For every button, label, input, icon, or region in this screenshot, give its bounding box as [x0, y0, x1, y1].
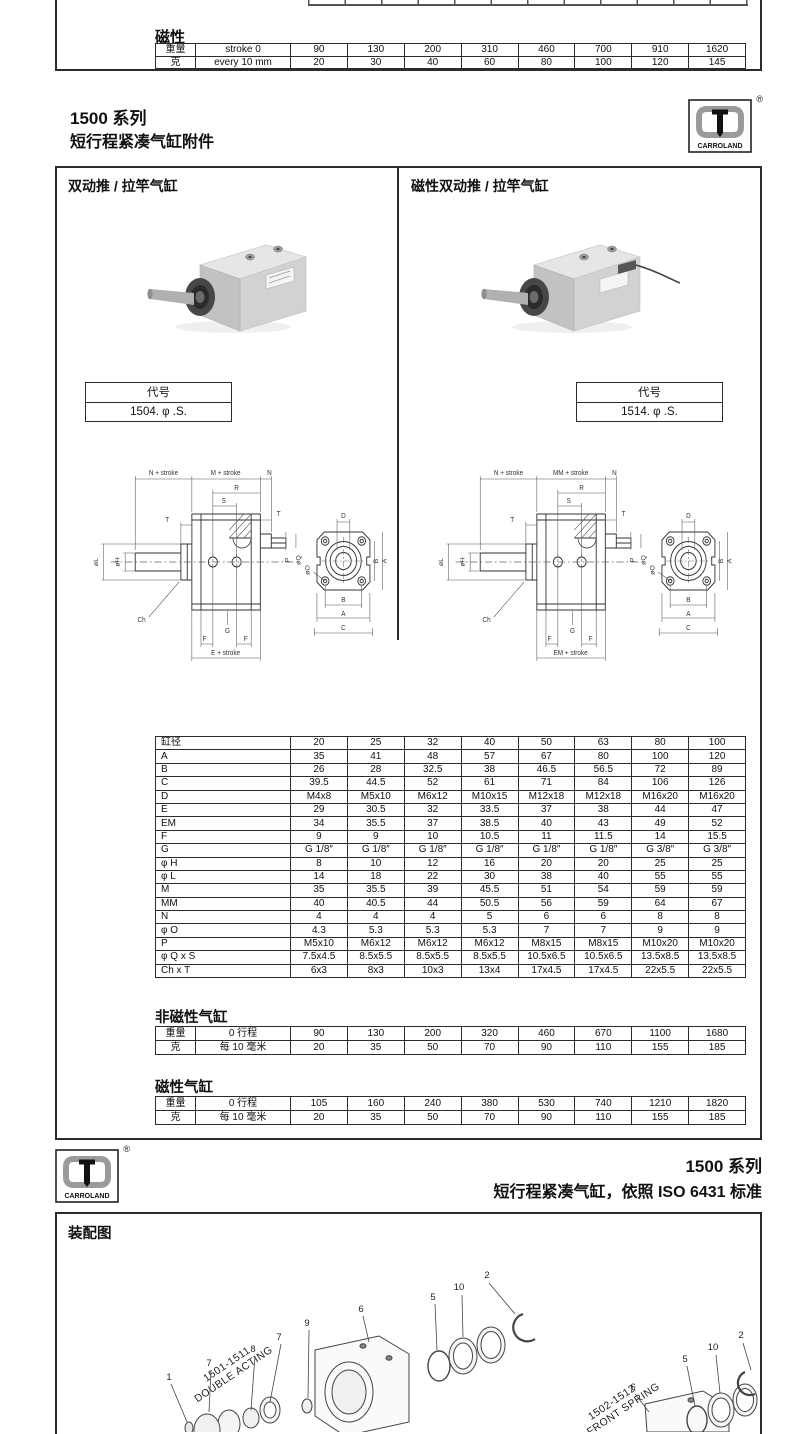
table-cell: 18 [347, 870, 404, 883]
table-cell: 20 [291, 56, 348, 69]
table-cell: 45.5 [461, 884, 518, 897]
table-cell: 80 [632, 737, 689, 750]
table-cell: 39 [404, 884, 461, 897]
table-cell: 重量 [156, 1027, 196, 1041]
table-cell: G 1/8″ [347, 844, 404, 857]
table-cell: 8.5x5.5 [347, 951, 404, 964]
table-cell: 6 [518, 911, 575, 924]
table-cell: 59 [575, 897, 632, 910]
table-cell: 530 [518, 1097, 575, 1111]
table-row: GG 1/8″G 1/8″G 1/8″G 1/8″G 1/8″G 1/8″G 3… [156, 844, 746, 857]
dim-oh: øH [115, 557, 122, 566]
table-cell: M16x20 [632, 790, 689, 803]
footer-subtitle: 短行程紧凑气缸，依照 ISO 6431 标准 [312, 1178, 762, 1202]
table-cell: M5x10 [291, 937, 348, 950]
table-cell: 110 [575, 1111, 632, 1125]
table-cell: 56 [518, 897, 575, 910]
table-cell: stroke 0 [196, 44, 291, 57]
table-cell: 90 [291, 1027, 348, 1041]
table-cell: 72 [632, 763, 689, 776]
table-cell: 35 [347, 1111, 404, 1125]
table-cell: EM [156, 817, 291, 830]
code-header-left: 代号 [86, 383, 232, 403]
table-cell: 每 10 毫米 [196, 1041, 291, 1055]
table-cell: 52 [404, 777, 461, 790]
table-row: φ L1418223038405555 [156, 870, 746, 883]
table-cell: 40 [291, 897, 348, 910]
table-cell: M10x20 [632, 937, 689, 950]
magnetic-cylinder-heading: 磁性气缸 [155, 1076, 213, 1097]
table-cell: 100 [689, 737, 746, 750]
table-cell: 38.5 [461, 817, 518, 830]
table-cell: 185 [689, 1041, 746, 1055]
table-cell: M8x15 [518, 937, 575, 950]
table-row: φ H810121620202525 [156, 857, 746, 870]
dim-a-right: A [727, 558, 734, 563]
table-cell: 70 [461, 1111, 518, 1125]
table-cell: 每 10 毫米 [196, 1111, 291, 1125]
dim-p: P [285, 557, 292, 562]
table-row: E2930.53233.537384447 [156, 803, 746, 816]
dim-r: R [234, 485, 239, 492]
table-cell: 克 [156, 56, 196, 69]
table-cell: 110 [575, 1041, 632, 1055]
table-cell: 10 [404, 830, 461, 843]
table-cell: 47 [689, 803, 746, 816]
callout-5: 5 [682, 1354, 687, 1365]
table-cell: 10.5x6.5 [518, 951, 575, 964]
table-cell: F [156, 830, 291, 843]
dim-c-bottom: C [686, 625, 691, 632]
table-cell: 130 [347, 1027, 404, 1041]
table-cell: 40 [518, 817, 575, 830]
callout-2: 2 [738, 1330, 743, 1341]
table-cell: M6x12 [461, 937, 518, 950]
dim-t-right: T [277, 511, 281, 518]
table-cell: 7.5x4.5 [291, 951, 348, 964]
previous-table-remnant-line [308, 4, 748, 6]
table-cell: 30 [347, 56, 404, 69]
dim-em-stroke: EM + stroke [554, 650, 588, 657]
dim-a-bottom: A [341, 611, 346, 618]
table-cell: 20 [291, 1041, 348, 1055]
table-cell: 5.3 [404, 924, 461, 937]
registered-trademark-icon-footer: ® [123, 1144, 130, 1154]
callout-10: 10 [454, 1282, 465, 1293]
dim-n: N [612, 470, 617, 477]
table-cell: 460 [518, 1027, 575, 1041]
dim-t-left: T [510, 517, 514, 524]
table-cell: 35 [291, 884, 348, 897]
table-row: M3535.53945.551545959 [156, 884, 746, 897]
table-cell: 44 [632, 803, 689, 816]
table-row: N44456688 [156, 911, 746, 924]
table-cell: 克 [156, 1111, 196, 1125]
code-table-right: 代号 1514. φ .S. [576, 382, 723, 422]
table-cell: G 1/8″ [404, 844, 461, 857]
table-cell: 59 [632, 884, 689, 897]
table-cell: 35 [347, 1041, 404, 1055]
table-cell: 50 [404, 1041, 461, 1055]
table-row: 重量stroke 0901302003104607009101620 [156, 44, 746, 57]
table-cell: 130 [347, 44, 404, 57]
table-cell: A [156, 750, 291, 763]
table-cell: 44 [404, 897, 461, 910]
table-cell: 17x4.5 [575, 964, 632, 977]
dim-e-stroke: E + stroke [211, 650, 240, 657]
table-row: Ch x T6x38x310x313x417x4.517x4.522x5.522… [156, 964, 746, 977]
dim-ch: Ch [483, 617, 491, 624]
table-cell: 460 [518, 44, 575, 57]
table-cell: 43 [575, 817, 632, 830]
table-cell: 52 [689, 817, 746, 830]
table-cell: 22x5.5 [632, 964, 689, 977]
table-cell: 16 [461, 857, 518, 870]
table-cell: 0 行程 [196, 1027, 291, 1041]
table-cell: 7 [575, 924, 632, 937]
table-cell: P [156, 937, 291, 950]
table-cell: M10x15 [461, 790, 518, 803]
dim-f-left: F [548, 636, 552, 643]
table-cell: 8 [689, 911, 746, 924]
table-cell: G 3/8″ [632, 844, 689, 857]
table-cell: every 10 mm [196, 56, 291, 69]
dimension-table: 缸径20253240506380100A354148576780100120B2… [155, 736, 746, 978]
table-cell: 30 [461, 870, 518, 883]
table-cell: 90 [518, 1041, 575, 1055]
code-header-right: 代号 [577, 383, 723, 403]
callout-10: 10 [708, 1342, 719, 1353]
table-cell: 12 [404, 857, 461, 870]
dim-f-right: F [244, 636, 248, 643]
table-cell: 11 [518, 830, 575, 843]
table-cell: 14 [632, 830, 689, 843]
table-row: φ O4.35.35.35.37799 [156, 924, 746, 937]
table-cell: 4 [347, 911, 404, 924]
table-cell: G [156, 844, 291, 857]
logo-text-footer: CARROLAND [64, 1193, 109, 1200]
table-cell: M [156, 884, 291, 897]
nonmagnetic-weight-table: 重量0 行程9013020032046067011001680克每 10 毫米2… [155, 1026, 746, 1055]
table-cell: φ O [156, 924, 291, 937]
dim-oh: øH [460, 557, 467, 566]
table-cell: 67 [689, 897, 746, 910]
catalog-page: 磁性 重量stroke 0901302003104607009101620克ev… [0, 0, 790, 1434]
table-cell: 1100 [632, 1027, 689, 1041]
table-cell: M12x18 [575, 790, 632, 803]
footer-series-title: 1500 系列 [412, 1152, 762, 1177]
dim-oq: øQ [641, 555, 648, 565]
table-cell: G 3/8″ [689, 844, 746, 857]
cylinder-photo-right [472, 223, 682, 335]
dim-mm-stroke: MM + stroke [553, 470, 589, 477]
table-row: 缸径20253240506380100 [156, 737, 746, 750]
table-cell: 6x3 [291, 964, 348, 977]
table-cell: 240 [404, 1097, 461, 1111]
dim-f-right: F [589, 636, 593, 643]
table-cell: 100 [575, 56, 632, 69]
table-cell: G 1/8″ [291, 844, 348, 857]
table-cell: 13x4 [461, 964, 518, 977]
right-column-title: 磁性双动推 / 拉竿气缸 [411, 176, 549, 196]
table-cell: 20 [575, 857, 632, 870]
table-cell: 35 [291, 750, 348, 763]
dim-a-bottom: A [686, 611, 691, 618]
table-cell: M12x18 [518, 790, 575, 803]
table-cell: 10.5 [461, 830, 518, 843]
table-cell: G 1/8″ [518, 844, 575, 857]
table-cell: 51 [518, 884, 575, 897]
table-cell: 9 [632, 924, 689, 937]
carroland-logo: CARROLAND ® [688, 99, 752, 153]
callout-9: 9 [304, 1318, 309, 1329]
dim-ch: Ch [138, 617, 146, 624]
table-cell: 40 [461, 737, 518, 750]
table-cell: M6x12 [404, 937, 461, 950]
table-cell: 700 [575, 44, 632, 57]
callout-6: 6 [630, 1382, 635, 1393]
table-cell: 8.5x5.5 [404, 951, 461, 964]
table-cell: 40 [404, 56, 461, 69]
logo-text: CARROLAND [697, 143, 742, 150]
carroland-logo-footer: CARROLAND ® [55, 1149, 119, 1203]
table-cell: 38 [518, 870, 575, 883]
table-cell: 9 [347, 830, 404, 843]
table-cell: 310 [461, 44, 518, 57]
magnetic-weight-table-top: 重量stroke 0901302003104607009101620克every… [155, 43, 746, 69]
registered-trademark-icon: ® [756, 94, 763, 104]
table-cell: 29 [291, 803, 348, 816]
dim-m-stroke: M + stroke [211, 470, 241, 477]
table-row: 克every 10 mm2030406080100120145 [156, 56, 746, 69]
table-cell: 9 [689, 924, 746, 937]
table-cell: 8 [291, 857, 348, 870]
table-cell: 35.5 [347, 884, 404, 897]
table-cell: 4 [291, 911, 348, 924]
table-cell: 155 [632, 1111, 689, 1125]
column-divider [397, 168, 399, 640]
table-cell: 37 [518, 803, 575, 816]
table-cell: 89 [689, 763, 746, 776]
table-cell: E [156, 803, 291, 816]
table-cell: M5x10 [347, 790, 404, 803]
dim-s: S [567, 498, 572, 505]
table-cell: M16x20 [689, 790, 746, 803]
table-cell: 910 [632, 44, 689, 57]
table-row: 重量0 行程9013020032046067011001680 [156, 1027, 746, 1041]
dim-oo: øO [305, 565, 312, 575]
table-cell: 32 [404, 737, 461, 750]
table-cell: 7 [518, 924, 575, 937]
code-table-left: 代号 1504. φ .S. [85, 382, 232, 422]
dim-f-left: F [203, 636, 207, 643]
technical-drawing-left: N + stroke M + stroke N R S T T P øQ øL … [85, 462, 390, 662]
series-title: 1500 系列 [70, 104, 147, 129]
table-cell: MM [156, 897, 291, 910]
table-cell: φ L [156, 870, 291, 883]
table-cell: 90 [291, 44, 348, 57]
table-row: EM3435.53738.540434952 [156, 817, 746, 830]
table-cell: 1210 [632, 1097, 689, 1111]
table-cell: 59 [689, 884, 746, 897]
table-cell: 84 [575, 777, 632, 790]
table-cell: D [156, 790, 291, 803]
table-cell: 克 [156, 1041, 196, 1055]
table-cell: 25 [632, 857, 689, 870]
table-cell: M6x12 [347, 937, 404, 950]
table-cell: 28 [347, 763, 404, 776]
table-cell: 100 [632, 750, 689, 763]
table-cell: 20 [291, 737, 348, 750]
table-cell: 13.5x8.5 [689, 951, 746, 964]
table-cell: 10.5x6.5 [575, 951, 632, 964]
table-cell: G 1/8″ [461, 844, 518, 857]
table-cell: 40.5 [347, 897, 404, 910]
table-cell: 4.3 [291, 924, 348, 937]
table-row: 克每 10 毫米2035507090110155185 [156, 1111, 746, 1125]
table-row: MM4040.54450.556596467 [156, 897, 746, 910]
code-value-left: 1504. φ .S. [86, 402, 232, 422]
table-cell: 35.5 [347, 817, 404, 830]
dim-t-right: T [622, 511, 626, 518]
table-cell: N [156, 911, 291, 924]
dim-n-stroke: N + stroke [494, 470, 524, 477]
table-cell: 90 [518, 1111, 575, 1125]
dim-g: G [225, 628, 230, 635]
table-cell: M4x8 [291, 790, 348, 803]
table-row: φ Q x S7.5x4.58.5x5.58.5x5.58.5x5.510.5x… [156, 951, 746, 964]
table-cell: 670 [575, 1027, 632, 1041]
table-cell: φ Q x S [156, 951, 291, 964]
table-cell: 60 [461, 56, 518, 69]
table-cell: 71 [518, 777, 575, 790]
table-cell: 145 [689, 56, 746, 69]
dim-r: R [579, 485, 584, 492]
table-cell: 50 [518, 737, 575, 750]
table-cell: 49 [632, 817, 689, 830]
table-cell: 32.5 [404, 763, 461, 776]
table-row: DM4x8M5x10M6x12M10x15M12x18M12x18M16x20M… [156, 790, 746, 803]
table-row: A354148576780100120 [156, 750, 746, 763]
magnetic-weight-table: 重量0 行程10516024038053074012101820克每 10 毫米… [155, 1096, 746, 1125]
code-value-right: 1514. φ .S. [577, 402, 723, 422]
table-cell: 48 [404, 750, 461, 763]
table-cell: 重量 [156, 44, 196, 57]
dim-g: G [570, 628, 575, 635]
table-cell: 8.5x5.5 [461, 951, 518, 964]
dim-ol: øL [93, 558, 100, 566]
table-cell: 63 [575, 737, 632, 750]
table-cell: 40 [575, 870, 632, 883]
table-cell: 38 [461, 763, 518, 776]
dim-oq: øQ [296, 555, 303, 565]
dim-b-right: B [373, 558, 380, 563]
table-cell: 25 [689, 857, 746, 870]
table-cell: 14 [291, 870, 348, 883]
table-cell: 64 [632, 897, 689, 910]
table-cell: 160 [347, 1097, 404, 1111]
table-cell: 38 [575, 803, 632, 816]
table-cell: 380 [461, 1097, 518, 1111]
table-cell: 37 [404, 817, 461, 830]
table-cell: 5 [461, 911, 518, 924]
callout-5: 5 [430, 1292, 435, 1303]
table-cell: 1820 [689, 1097, 746, 1111]
table-cell: 320 [461, 1027, 518, 1041]
table-row: 重量0 行程10516024038053074012101820 [156, 1097, 746, 1111]
dim-n-stroke: N + stroke [149, 470, 179, 477]
table-cell: 39.5 [291, 777, 348, 790]
table-cell: 9 [291, 830, 348, 843]
table-cell: 4 [404, 911, 461, 924]
technical-drawing-right: N + stroke MM + stroke N R S T T P øQ øL… [430, 462, 735, 662]
table-row: C39.544.552617184106126 [156, 777, 746, 790]
dim-a-right: A [382, 558, 389, 563]
table-cell: 200 [404, 1027, 461, 1041]
table-cell: 8x3 [347, 964, 404, 977]
table-row: B262832.53846.556.57289 [156, 763, 746, 776]
dim-b-bottom: B [341, 597, 346, 604]
table-cell: 33.5 [461, 803, 518, 816]
table-cell: 15.5 [689, 830, 746, 843]
table-row: F991010.51111.51415.5 [156, 830, 746, 843]
dim-oo: øO [650, 565, 657, 575]
nonmagnetic-heading: 非磁性气缸 [155, 1006, 228, 1027]
table-cell: 13.5x8.5 [632, 951, 689, 964]
table-cell: 155 [632, 1041, 689, 1055]
callout-7b: 7 [206, 1358, 211, 1369]
table-cell: 120 [689, 750, 746, 763]
table-cell: G 1/8″ [575, 844, 632, 857]
table-cell: 缸径 [156, 737, 291, 750]
table-cell: 5.3 [461, 924, 518, 937]
table-cell: 50 [404, 1111, 461, 1125]
table-cell: 46.5 [518, 763, 575, 776]
table-cell: 30.5 [347, 803, 404, 816]
table-cell: 44.5 [347, 777, 404, 790]
table-cell: M6x12 [404, 790, 461, 803]
table-cell: 17x4.5 [518, 964, 575, 977]
table-cell: φ H [156, 857, 291, 870]
table-cell: 41 [347, 750, 404, 763]
table-cell: 10 [347, 857, 404, 870]
table-cell: 22x5.5 [689, 964, 746, 977]
table-cell: 80 [575, 750, 632, 763]
table-cell: 61 [461, 777, 518, 790]
dim-d: D [686, 513, 691, 520]
table-cell: 22 [404, 870, 461, 883]
table-cell: 57 [461, 750, 518, 763]
table-cell: 11.5 [575, 830, 632, 843]
callout-2: 2 [484, 1270, 489, 1281]
table-cell: 54 [575, 884, 632, 897]
table-cell: 10x3 [404, 964, 461, 977]
table-cell: 126 [689, 777, 746, 790]
dim-ol: øL [438, 558, 445, 566]
table-cell: 50.5 [461, 897, 518, 910]
table-cell: 34 [291, 817, 348, 830]
table-row: 克每 10 毫米2035507090110155185 [156, 1041, 746, 1055]
table-cell: 185 [689, 1111, 746, 1125]
table-cell: 0 行程 [196, 1097, 291, 1111]
sensor-cable [636, 265, 680, 283]
table-cell: 8 [632, 911, 689, 924]
table-cell: 55 [689, 870, 746, 883]
table-cell: 6 [575, 911, 632, 924]
left-column-title: 双动推 / 拉竿气缸 [68, 176, 178, 196]
table-cell: 25 [347, 737, 404, 750]
table-cell: 重量 [156, 1097, 196, 1111]
